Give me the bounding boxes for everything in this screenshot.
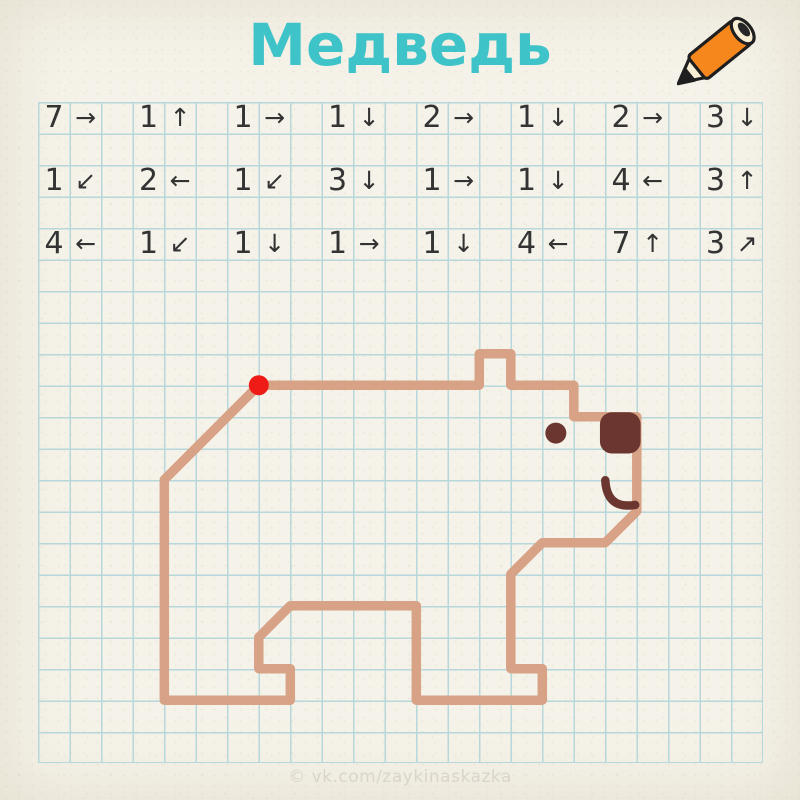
- bear-nose: [600, 412, 641, 453]
- watermark: © vk.com/zaykinaskazka: [0, 767, 800, 787]
- worksheet-page: { "title": "Медведь", "watermark": "© vk…: [0, 0, 800, 800]
- bear-mouth: [605, 480, 635, 505]
- bear-eye: [545, 423, 566, 444]
- bear-outline: [164, 354, 637, 701]
- start-dot: [249, 375, 269, 395]
- bear-drawing: [0, 0, 800, 800]
